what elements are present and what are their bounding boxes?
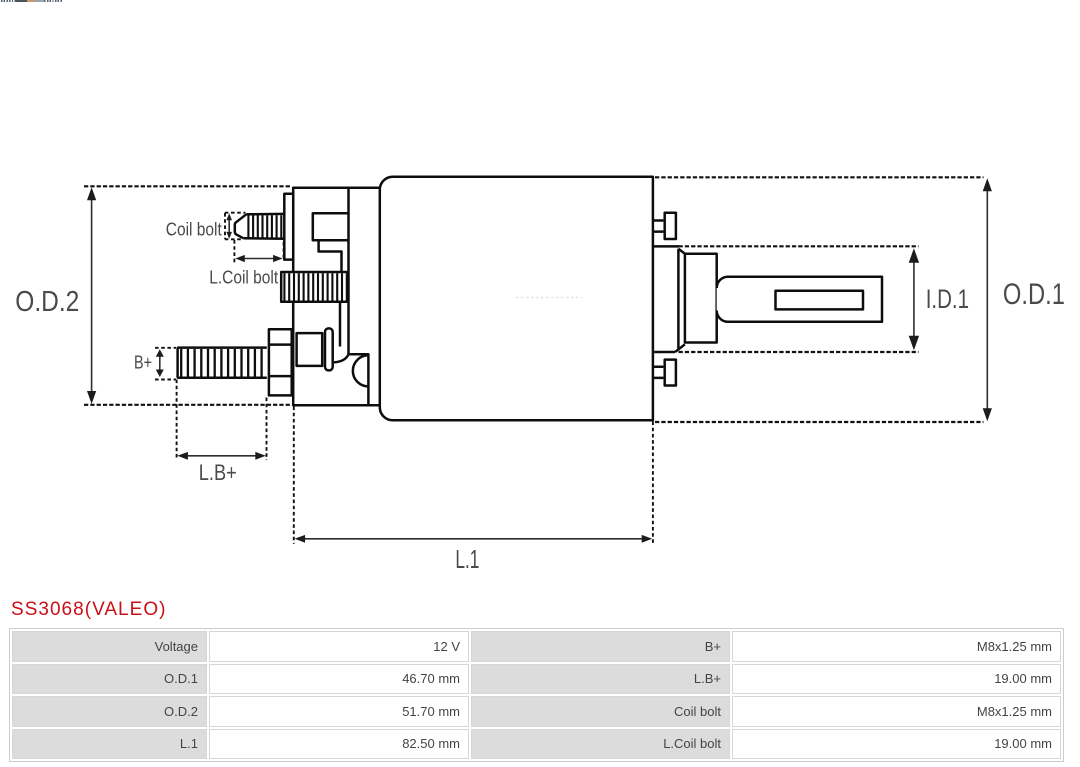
svg-text:L.1: L.1 <box>455 544 479 574</box>
svg-text:I.D.1: I.D.1 <box>926 284 969 314</box>
svg-text:L.Coil bolt: L.Coil bolt <box>209 267 278 288</box>
svg-text:Coil bolt: Coil bolt <box>166 219 222 239</box>
svg-text:L.B+: L.B+ <box>199 460 237 485</box>
svg-text:O.D.1: O.D.1 <box>1003 278 1065 311</box>
svg-text:B+: B+ <box>134 353 152 373</box>
svg-text:O.D.2: O.D.2 <box>15 286 79 318</box>
